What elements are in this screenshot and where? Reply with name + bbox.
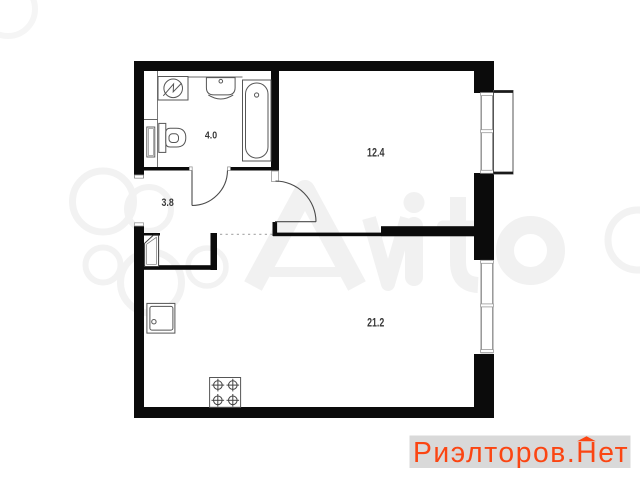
svg-text:Риэлторов.Нет: Риэлторов.Нет [413, 436, 629, 468]
svg-text:4.0: 4.0 [205, 130, 217, 141]
svg-text:21.2: 21.2 [367, 317, 384, 329]
svg-text:12.4: 12.4 [367, 145, 385, 159]
svg-text:3.8: 3.8 [161, 197, 173, 209]
